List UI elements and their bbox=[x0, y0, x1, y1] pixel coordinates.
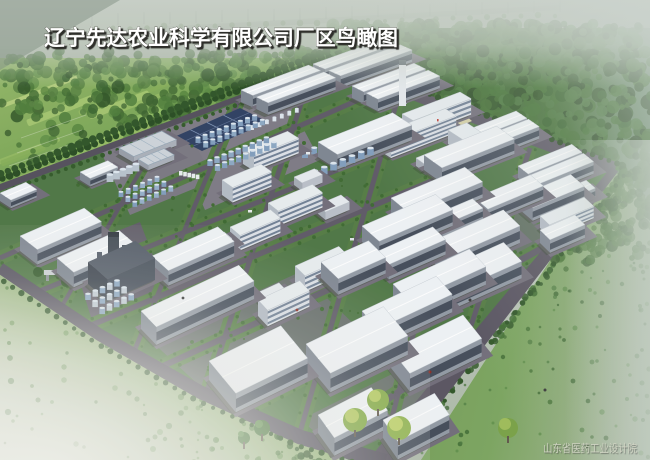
svg-text:山东省医药工业设计院: 山东省医药工业设计院 bbox=[543, 441, 637, 455]
svg-text:辽宁先达农业科学有限公司厂区鸟瞰图: 辽宁先达农业科学有限公司厂区鸟瞰图 bbox=[44, 26, 398, 50]
